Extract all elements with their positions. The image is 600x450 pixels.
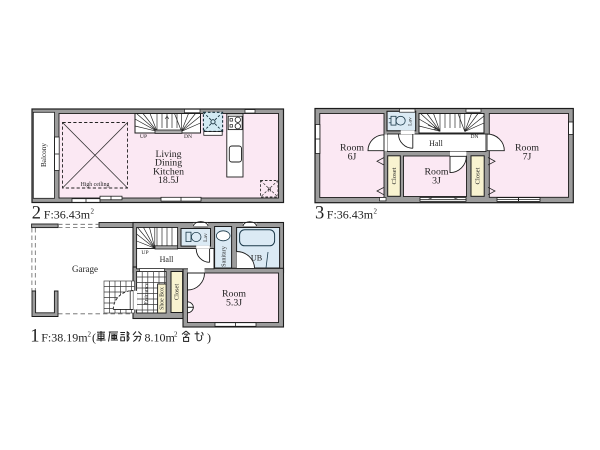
svg-text:Lav: Lav <box>408 117 414 126</box>
svg-text:2: 2 <box>374 208 378 216</box>
svg-text:Closet: Closet <box>174 284 181 301</box>
svg-text:): ) <box>207 331 211 345</box>
svg-text:Hall: Hall <box>160 255 175 264</box>
svg-text:Sanitary: Sanitary <box>221 245 228 267</box>
svg-text:2: 2 <box>88 331 92 339</box>
svg-text:18.5J: 18.5J <box>158 175 179 186</box>
svg-text:Closet: Closet <box>391 167 398 184</box>
svg-text:3: 3 <box>315 204 324 224</box>
svg-text:2: 2 <box>174 331 178 339</box>
svg-text:3J: 3J <box>432 176 441 187</box>
svg-text:8.10m: 8.10m <box>145 331 176 345</box>
svg-text:Closet: Closet <box>474 167 481 184</box>
svg-text:F:36.43m: F:36.43m <box>44 208 91 222</box>
svg-text:UB: UB <box>251 254 263 263</box>
svg-text:Lav: Lav <box>203 233 209 242</box>
svg-text:2: 2 <box>32 204 41 224</box>
svg-text:Balcony: Balcony <box>40 143 48 167</box>
svg-text:6J: 6J <box>348 152 357 163</box>
svg-text:High ceiling: High ceiling <box>81 182 110 188</box>
svg-text:2: 2 <box>91 208 95 216</box>
svg-text:F:38.19m: F:38.19m <box>41 331 88 345</box>
svg-text:R: R <box>267 187 271 193</box>
svg-text:1: 1 <box>30 327 39 347</box>
svg-text:(: ( <box>92 331 96 345</box>
svg-text:5.3J: 5.3J <box>226 298 242 309</box>
svg-text:Shoe Box: Shoe Box <box>160 287 166 310</box>
svg-text:Garage: Garage <box>72 264 98 274</box>
svg-text:Entrance: Entrance <box>143 282 150 305</box>
svg-text:F:36.43m: F:36.43m <box>327 208 374 222</box>
svg-text:7J: 7J <box>523 152 532 163</box>
svg-text:UP: UP <box>141 250 148 256</box>
svg-text:Hall: Hall <box>429 139 444 148</box>
svg-text:DN: DN <box>470 134 478 140</box>
svg-text:DN: DN <box>184 134 192 140</box>
svg-text:UP: UP <box>140 134 147 140</box>
